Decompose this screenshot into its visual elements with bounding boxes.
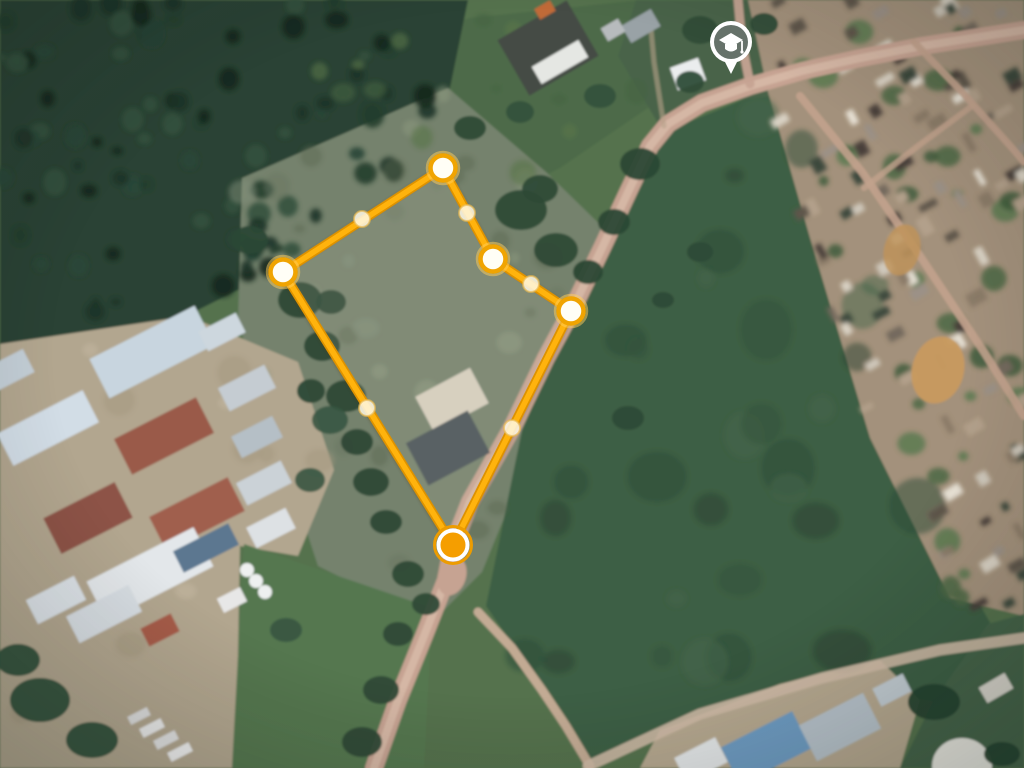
satellite-map-viewport[interactable] (0, 0, 1024, 768)
vertex-handle[interactable] (431, 156, 456, 181)
midpoint-handle[interactable] (359, 400, 375, 416)
vertex-handle-selected[interactable] (439, 531, 468, 560)
vertex-handle[interactable] (481, 247, 506, 272)
midpoint-handle[interactable] (459, 205, 475, 221)
cap-tassel-end (740, 50, 743, 53)
satellite-map-scene (0, 0, 1024, 768)
vertex-handle[interactable] (559, 299, 584, 324)
midpoint-handle[interactable] (504, 420, 520, 436)
vertex-handle[interactable] (271, 260, 296, 285)
midpoint-handle[interactable] (523, 276, 539, 292)
midpoint-handle[interactable] (354, 211, 370, 227)
